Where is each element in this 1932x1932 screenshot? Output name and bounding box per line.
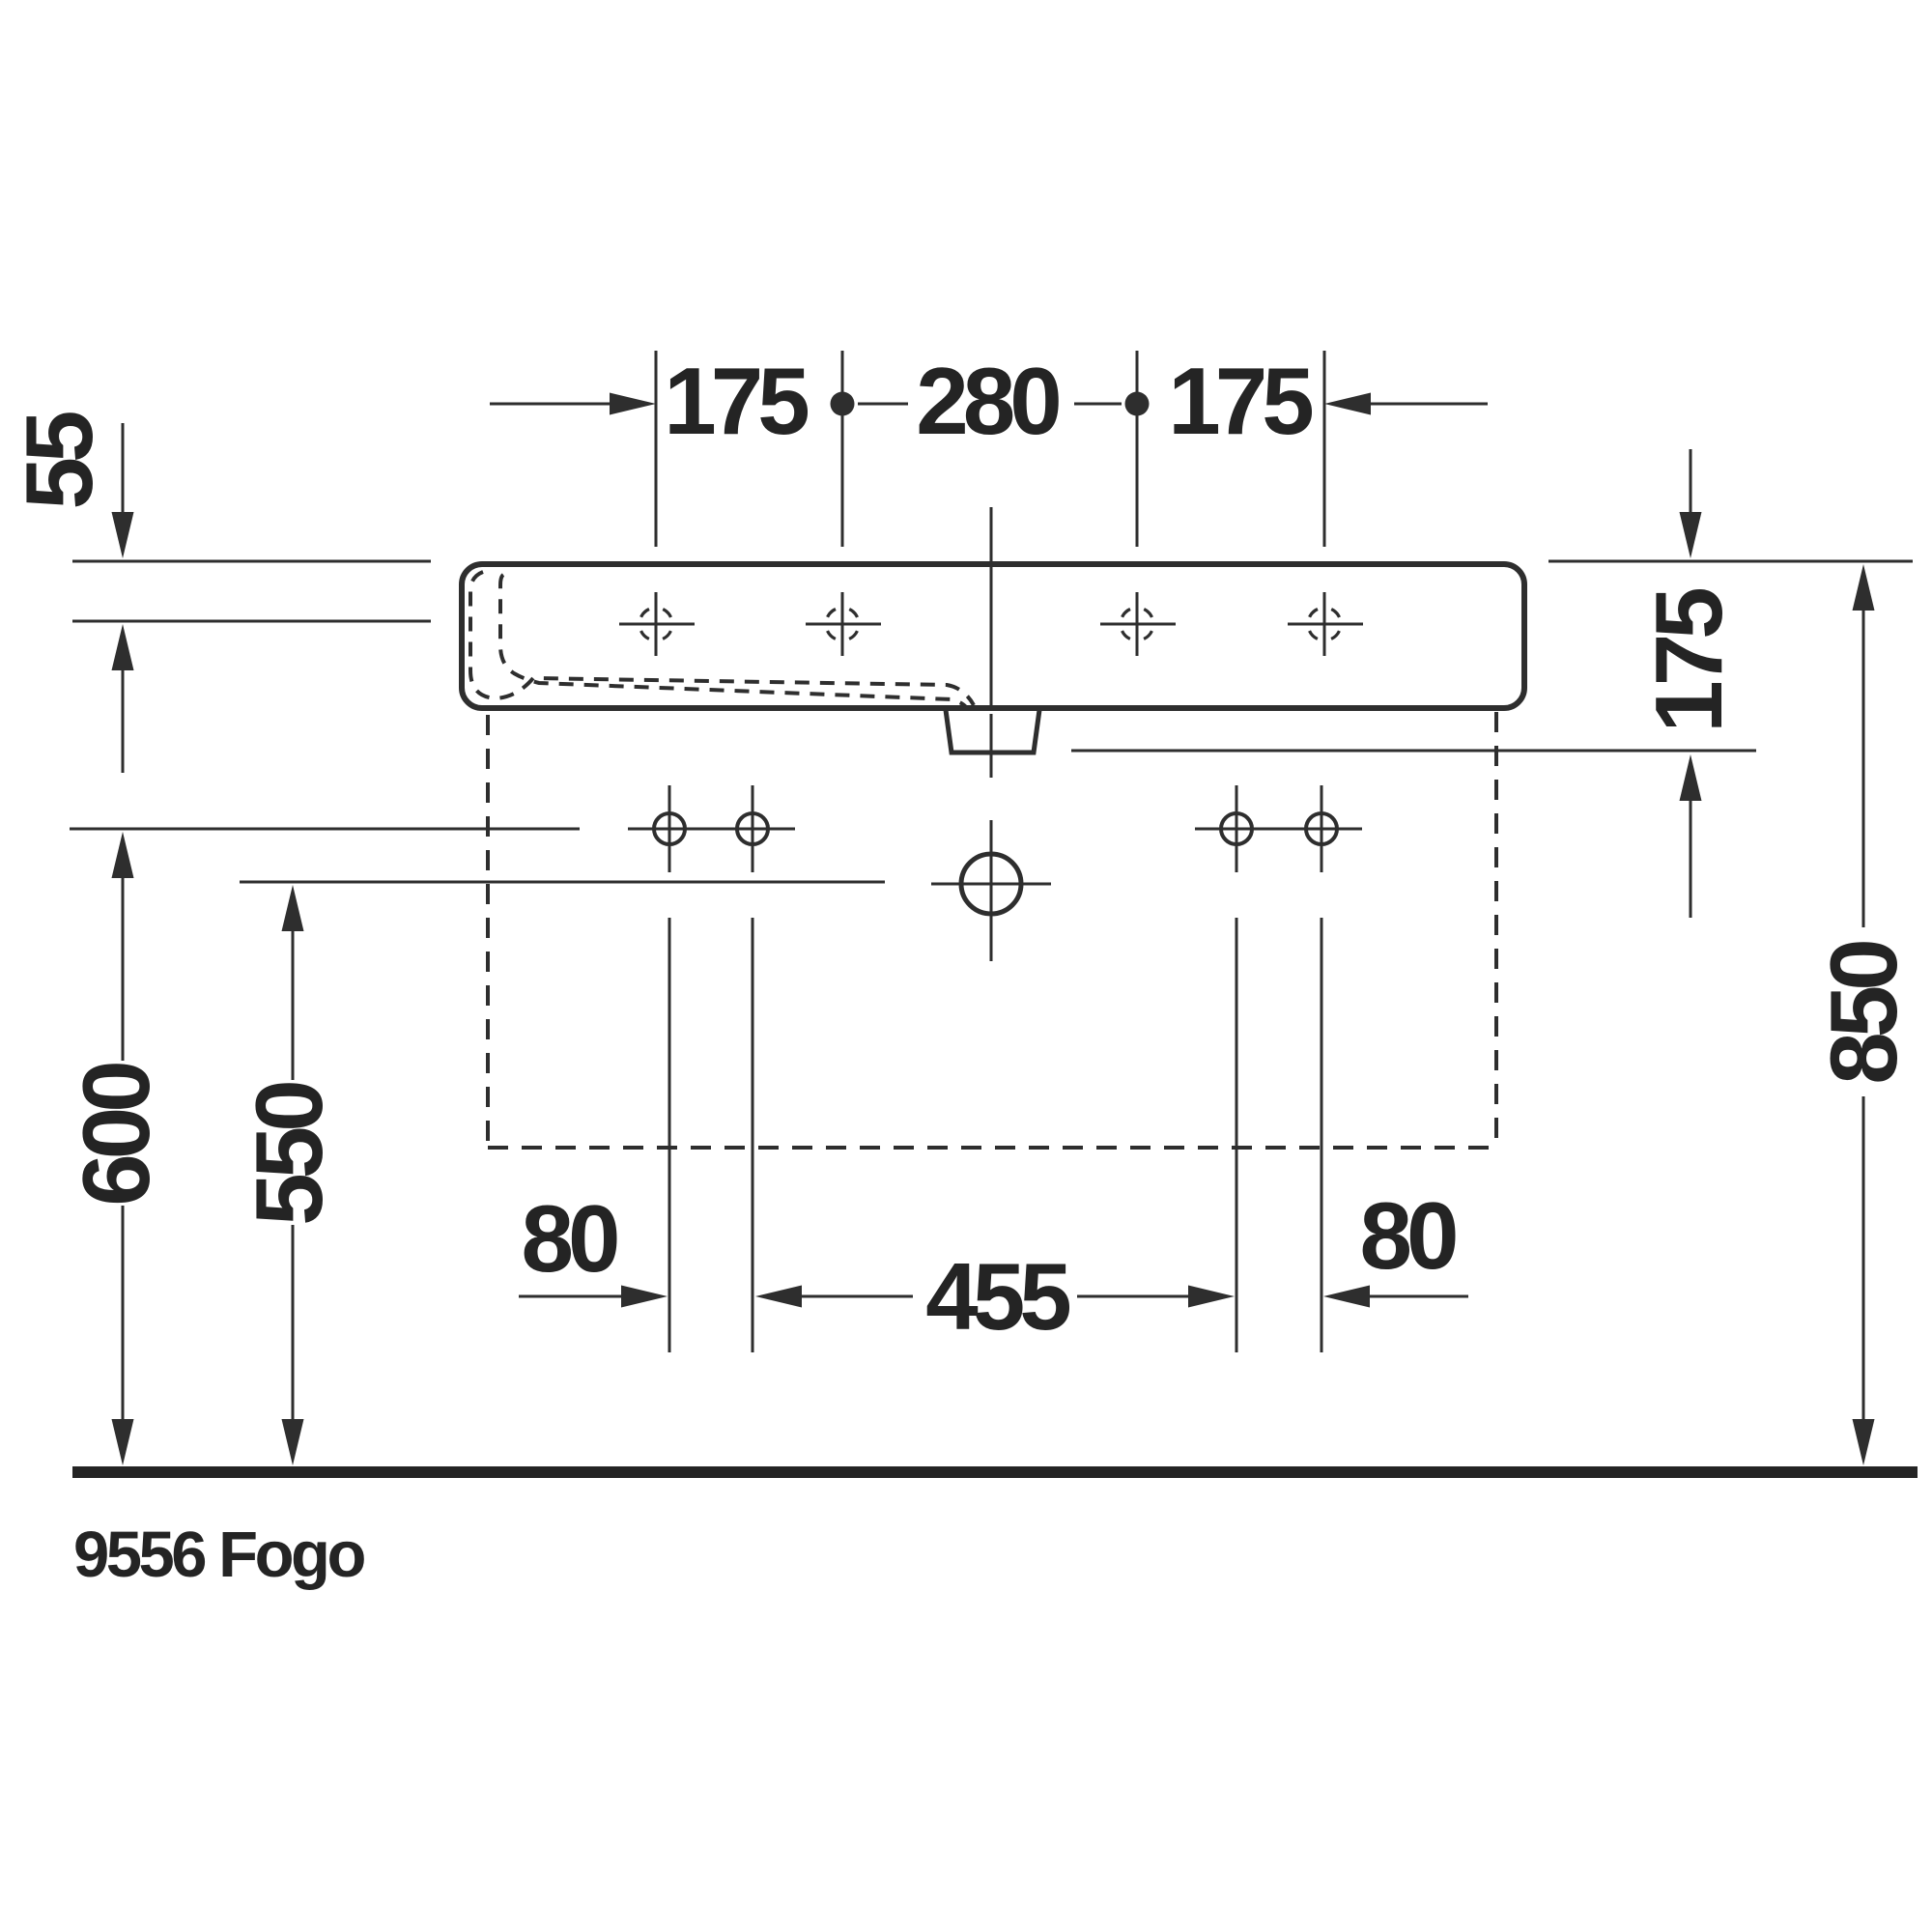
svg-text:80: 80 [521, 1185, 617, 1292]
svg-text:600: 600 [63, 1064, 169, 1207]
svg-text:550: 550 [236, 1083, 342, 1226]
svg-text:9556 Fogo: 9556 Fogo [73, 1519, 364, 1591]
svg-text:175: 175 [1168, 348, 1312, 454]
svg-text:280: 280 [916, 348, 1059, 454]
svg-text:175: 175 [664, 348, 808, 454]
svg-text:850: 850 [1810, 942, 1917, 1085]
svg-text:80: 80 [1359, 1182, 1456, 1289]
svg-text:455: 455 [925, 1243, 1069, 1350]
svg-text:175: 175 [1635, 589, 1742, 733]
svg-text:55: 55 [6, 412, 112, 510]
